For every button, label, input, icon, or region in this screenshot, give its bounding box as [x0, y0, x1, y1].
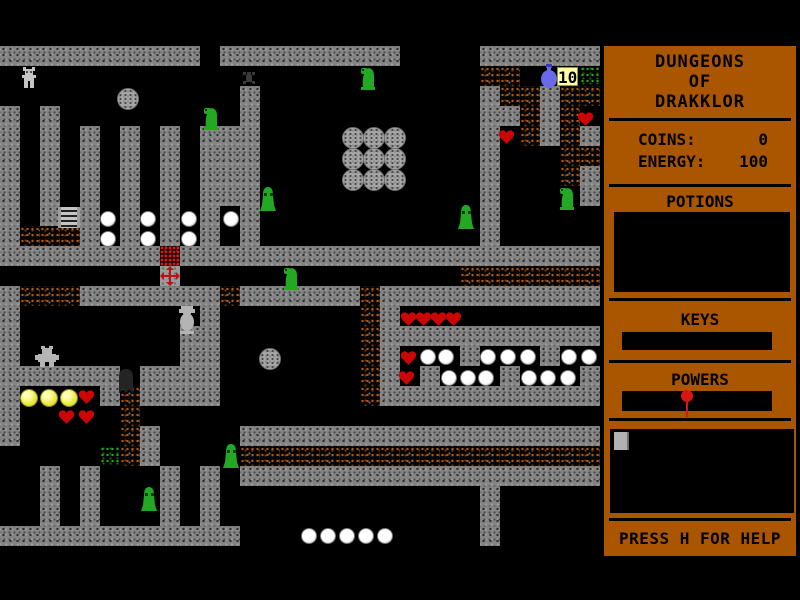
- duck-slime-sprite: [281, 266, 298, 290]
- gray-wall-tile: [80, 246, 100, 266]
- dirt-rubble-tile: [520, 126, 540, 146]
- duck-slime-sprite: [201, 106, 218, 130]
- boulder-sprite: [342, 127, 364, 149]
- gray-wall-tile: [200, 346, 220, 366]
- gray-wall-tile: [420, 366, 440, 386]
- gray-wall-tile: [0, 526, 20, 546]
- dirt-rubble-tile: [40, 226, 60, 246]
- dirt-rubble-tile: [340, 446, 360, 466]
- gray-wall-tile: [0, 306, 20, 326]
- gray-wall-tile: [40, 206, 60, 226]
- gray-wall-tile: [180, 286, 200, 306]
- dirt-rubble-tile: [580, 146, 600, 166]
- gray-wall-tile: [180, 46, 200, 66]
- gray-wall-tile: [0, 386, 20, 406]
- gray-wall-tile: [80, 526, 100, 546]
- gray-wall-tile: [80, 486, 100, 506]
- dirt-rubble-tile: [520, 266, 540, 286]
- gray-wall-tile: [500, 386, 520, 406]
- gray-wall-tile: [0, 106, 20, 126]
- gray-wall-tile: [260, 466, 280, 486]
- gray-wall-tile: [440, 326, 460, 346]
- gray-wall-tile: [480, 466, 500, 486]
- gray-wall-tile: [160, 226, 180, 246]
- gray-wall-tile: [20, 366, 40, 386]
- gray-wall-tile: [460, 386, 480, 406]
- gray-wall-tile: [180, 386, 200, 406]
- gray-wall-tile: [200, 306, 220, 326]
- gray-wall-tile: [0, 406, 20, 426]
- gray-wall-tile: [140, 286, 160, 306]
- dirt-rubble-tile: [40, 286, 60, 306]
- gray-wall-tile: [280, 426, 300, 446]
- gray-wall-tile: [420, 326, 440, 346]
- keys-heading: KEYS: [604, 310, 796, 329]
- dirt-rubble-tile: [500, 266, 520, 286]
- gray-wall-tile: [480, 106, 500, 126]
- gray-wall-tile: [540, 466, 560, 486]
- gray-wall-tile: [280, 466, 300, 486]
- gray-wall-tile: [560, 426, 580, 446]
- game-title-line3: DRAKKLOR: [604, 92, 796, 112]
- coins-label: COINS:: [638, 130, 696, 149]
- gray-wall-tile: [520, 286, 540, 306]
- gray-wall-tile: [140, 446, 160, 466]
- dirt-rubble-tile: [500, 66, 520, 86]
- pearl-sprite: [500, 349, 516, 365]
- dirt-rubble-tile: [20, 286, 40, 306]
- gray-wall-tile: [340, 246, 360, 266]
- dirt-rubble-tile: [240, 446, 260, 466]
- gray-wall-tile: [480, 426, 500, 446]
- gray-wall-tile: [480, 326, 500, 346]
- dirt-rubble-tile: [480, 446, 500, 466]
- pearl-sprite: [561, 349, 577, 365]
- gray-wall-tile: [300, 426, 320, 446]
- dirt-rubble-tile: [320, 446, 340, 466]
- gray-wall-tile: [400, 286, 420, 306]
- gray-wall-tile: [380, 286, 400, 306]
- gray-wall-tile: [300, 46, 320, 66]
- gray-wall-tile: [160, 146, 180, 166]
- coins-row: COINS: 0: [604, 130, 796, 149]
- gray-wall-tile: [80, 166, 100, 186]
- gray-wall-tile: [200, 206, 220, 226]
- gray-wall-tile: [100, 46, 120, 66]
- dirt-rubble-tile: [400, 446, 420, 466]
- gray-wall-tile: [480, 486, 500, 506]
- gray-wall-tile: [100, 286, 120, 306]
- dirt-rubble-tile: [540, 266, 560, 286]
- gray-wall-tile: [140, 426, 160, 446]
- divider: [609, 184, 791, 187]
- pearl-sprite: [377, 528, 393, 544]
- gray-wall-tile: [120, 246, 140, 266]
- coins-value: 0: [758, 130, 768, 149]
- dirt-rubble-tile: [220, 286, 240, 306]
- gray-wall-tile: [260, 46, 280, 66]
- gray-wall-tile: [0, 426, 20, 446]
- divider: [609, 298, 791, 301]
- pearl-sprite: [478, 370, 494, 386]
- divider: [609, 118, 791, 121]
- gray-wall-tile: [120, 526, 140, 546]
- gray-wall-tile: [280, 246, 300, 266]
- gray-wall-tile: [40, 366, 60, 386]
- dirt-rubble-tile: [360, 366, 380, 386]
- dungeon-map[interactable]: 10: [0, 46, 600, 566]
- gray-wall-tile: [580, 46, 600, 66]
- dirt-rubble-tile: [300, 446, 320, 466]
- gray-wall-tile: [80, 366, 100, 386]
- gray-wall-tile: [380, 246, 400, 266]
- boulder-sprite: [342, 169, 364, 191]
- gray-wall-tile: [500, 46, 520, 66]
- gray-wall-tile: [320, 46, 340, 66]
- pearl-sprite: [480, 349, 496, 365]
- pearl-sprite: [438, 349, 454, 365]
- bell-slime-sprite: [140, 486, 158, 512]
- gray-wall-tile: [40, 246, 60, 266]
- gray-wall-tile: [300, 246, 320, 266]
- counter-sprite: 10: [557, 67, 578, 86]
- heart-sprite: [78, 409, 95, 425]
- gray-wall-tile: [540, 386, 560, 406]
- gray-wall-tile: [580, 286, 600, 306]
- gray-wall-tile: [200, 466, 220, 486]
- gray-wall-tile: [540, 126, 560, 146]
- yellow-ball-sprite: [60, 389, 78, 407]
- duck-slime-sprite: [557, 186, 574, 210]
- gray-wall-tile: [0, 346, 20, 366]
- pearl-sprite: [521, 370, 537, 386]
- gray-wall-tile: [60, 246, 80, 266]
- gray-wall-tile: [580, 366, 600, 386]
- gray-wall-tile: [400, 246, 420, 266]
- dirt-rubble-tile: [420, 446, 440, 466]
- divider: [609, 518, 791, 521]
- gray-wall-tile: [160, 526, 180, 546]
- gray-wall-tile: [480, 246, 500, 266]
- pearl-sprite: [420, 349, 436, 365]
- gray-wall-tile: [360, 246, 380, 266]
- grass-patch-tile: [100, 446, 120, 466]
- gray-wall-tile: [460, 466, 480, 486]
- gray-wall-tile: [40, 106, 60, 126]
- pearl-sprite: [100, 211, 116, 227]
- gray-wall-tile: [480, 146, 500, 166]
- gray-wall-tile: [220, 46, 240, 66]
- inventory-box: [610, 429, 794, 513]
- gray-wall-tile: [200, 506, 220, 526]
- gray-wall-tile: [200, 286, 220, 306]
- gray-wall-tile: [580, 466, 600, 486]
- gray-wall-tile: [160, 366, 180, 386]
- heart-sprite: [577, 111, 594, 127]
- gray-wall-tile: [260, 426, 280, 446]
- gray-wall-tile: [560, 46, 580, 66]
- statue-sprite: [176, 306, 198, 334]
- gray-wall-tile: [380, 46, 400, 66]
- gray-wall-tile: [80, 206, 100, 226]
- pearl-sprite: [581, 349, 597, 365]
- gray-wall-tile: [160, 486, 180, 506]
- gray-wall-tile: [40, 46, 60, 66]
- heart-sprite: [58, 409, 75, 425]
- gray-wall-tile: [240, 466, 260, 486]
- heart-sprite: [398, 370, 415, 386]
- gray-wall-tile: [80, 286, 100, 306]
- gray-wall-tile: [200, 366, 220, 386]
- gray-wall-tile: [460, 326, 480, 346]
- ladder-sprite: [58, 207, 80, 228]
- gray-wall-tile: [580, 426, 600, 446]
- dirt-rubble-tile: [560, 166, 580, 186]
- gray-wall-tile: [60, 526, 80, 546]
- power-pin-icon: [680, 389, 694, 419]
- dirt-rubble-tile: [380, 446, 400, 466]
- dirt-rubble-tile: [360, 386, 380, 406]
- dirt-rubble-tile: [480, 266, 500, 286]
- gray-wall-tile: [460, 246, 480, 266]
- gray-wall-tile: [160, 206, 180, 226]
- gray-wall-tile: [380, 306, 400, 326]
- red-rubble-tile: [160, 246, 180, 266]
- gray-wall-tile: [160, 166, 180, 186]
- gray-wall-tile: [500, 326, 520, 346]
- duck-slime-sprite: [358, 66, 375, 90]
- gray-wall-tile: [80, 226, 100, 246]
- gray-wall-tile: [40, 526, 60, 546]
- help-text: PRESS H FOR HELP: [604, 529, 796, 548]
- gray-wall-tile: [560, 246, 580, 266]
- flask-sprite: [539, 64, 559, 88]
- gray-wall-tile: [580, 126, 600, 146]
- yellow-ball-sprite: [20, 389, 38, 407]
- gray-wall-tile: [500, 466, 520, 486]
- gray-wall-tile: [540, 326, 560, 346]
- divider: [609, 418, 791, 421]
- heart-sprite: [400, 350, 417, 366]
- gray-wall-tile: [200, 186, 220, 206]
- gray-wall-tile: [200, 146, 220, 166]
- boulder-sprite: [384, 169, 406, 191]
- gray-wall-tile: [40, 146, 60, 166]
- gray-wall-tile: [20, 246, 40, 266]
- heart-sprite: [445, 311, 462, 327]
- powers-box: [622, 391, 772, 411]
- gray-wall-tile: [180, 526, 200, 546]
- pearl-sprite: [181, 231, 197, 247]
- gray-wall-tile: [380, 366, 400, 386]
- powers-heading: POWERS: [604, 370, 796, 389]
- energy-label: ENERGY:: [638, 152, 705, 171]
- gray-wall-tile: [480, 46, 500, 66]
- gray-wall-tile: [340, 466, 360, 486]
- gray-wall-tile: [80, 46, 100, 66]
- gray-wall-tile: [400, 426, 420, 446]
- gray-wall-tile: [240, 246, 260, 266]
- gray-wall-tile: [120, 146, 140, 166]
- gray-wall-tile: [500, 366, 520, 386]
- dirt-rubble-tile: [60, 226, 80, 246]
- gray-wall-tile: [160, 126, 180, 146]
- gray-wall-tile: [260, 286, 280, 306]
- dirt-rubble-tile: [560, 126, 580, 146]
- gray-wall-tile: [460, 346, 480, 366]
- dirt-rubble-tile: [560, 86, 580, 106]
- gray-wall-tile: [420, 466, 440, 486]
- gray-wall-tile: [160, 386, 180, 406]
- gray-wall-tile: [400, 386, 420, 406]
- gray-wall-tile: [140, 386, 160, 406]
- gray-wall-tile: [580, 186, 600, 206]
- pearl-sprite: [320, 528, 336, 544]
- boulder-sprite: [384, 127, 406, 149]
- gray-wall-tile: [40, 186, 60, 206]
- gray-wall-tile: [80, 126, 100, 146]
- gray-wall-tile: [420, 386, 440, 406]
- gray-wall-tile: [200, 326, 220, 346]
- gray-wall-tile: [520, 466, 540, 486]
- dirt-rubble-tile: [260, 446, 280, 466]
- gray-wall-tile: [300, 466, 320, 486]
- gray-wall-tile: [200, 526, 220, 546]
- gray-wall-tile: [360, 46, 380, 66]
- boulder-sprite: [363, 127, 385, 149]
- gray-wall-tile: [420, 286, 440, 306]
- dirt-rubble-tile: [120, 426, 140, 446]
- player-sprite: [21, 67, 37, 88]
- gray-wall-tile: [440, 386, 460, 406]
- dirt-rubble-tile: [520, 86, 540, 106]
- gray-wall-tile: [80, 146, 100, 166]
- gray-wall-tile: [520, 326, 540, 346]
- gray-wall-tile: [120, 286, 140, 306]
- gray-wall-tile: [240, 146, 260, 166]
- gray-wall-tile: [300, 286, 320, 306]
- gray-wall-tile: [120, 166, 140, 186]
- grass-patch-tile: [580, 66, 600, 86]
- gray-wall-tile: [0, 146, 20, 166]
- gray-wall-tile: [340, 426, 360, 446]
- pearl-sprite: [223, 211, 239, 227]
- gray-wall-tile: [40, 126, 60, 146]
- pearl-sprite: [560, 370, 576, 386]
- pearl-sprite: [460, 370, 476, 386]
- gray-wall-tile: [380, 386, 400, 406]
- gray-wall-tile: [240, 426, 260, 446]
- gray-wall-tile: [540, 86, 560, 106]
- gray-wall-tile: [80, 466, 100, 486]
- gray-wall-tile: [320, 466, 340, 486]
- gray-wall-tile: [0, 366, 20, 386]
- gray-wall-tile: [480, 86, 500, 106]
- gray-wall-tile: [160, 506, 180, 526]
- gray-wall-tile: [320, 426, 340, 446]
- heart-sprite: [498, 129, 515, 145]
- game-title-line1: DUNGEONS: [604, 52, 796, 72]
- gray-wall-tile: [180, 346, 200, 366]
- gray-wall-tile: [500, 246, 520, 266]
- dirt-rubble-tile: [560, 146, 580, 166]
- gray-wall-tile: [40, 466, 60, 486]
- dirt-rubble-tile: [360, 286, 380, 306]
- potions-heading: POTIONS: [604, 192, 796, 211]
- gray-wall-tile: [400, 326, 420, 346]
- gray-wall-tile: [500, 106, 520, 126]
- potions-box: [614, 212, 790, 292]
- boulder-sprite: [259, 348, 281, 370]
- gray-wall-tile: [560, 466, 580, 486]
- dirt-rubble-tile: [580, 86, 600, 106]
- dirt-rubble-tile: [360, 346, 380, 366]
- bug-sprite: [241, 70, 257, 86]
- dirt-rubble-tile: [500, 86, 520, 106]
- boulder-sprite: [117, 88, 139, 110]
- pearl-sprite: [140, 211, 156, 227]
- boulder-sprite: [363, 169, 385, 191]
- gray-wall-tile: [540, 346, 560, 366]
- gray-wall-tile: [0, 206, 20, 226]
- gray-wall-tile: [480, 186, 500, 206]
- gray-wall-tile: [120, 226, 140, 246]
- pearl-sprite: [441, 370, 457, 386]
- gray-wall-tile: [0, 226, 20, 246]
- boulder-sprite: [363, 148, 385, 170]
- gray-wall-tile: [320, 286, 340, 306]
- dirt-rubble-tile: [460, 446, 480, 466]
- gray-wall-tile: [140, 46, 160, 66]
- status-sidebar: DUNGEONS OF DRAKKLOR COINS: 0 ENERGY: 10…: [602, 44, 798, 558]
- pearl-sprite: [181, 211, 197, 227]
- heart-sprite: [78, 389, 95, 405]
- dirt-rubble-tile: [500, 446, 520, 466]
- gray-wall-tile: [280, 46, 300, 66]
- bell-slime-sprite: [222, 443, 240, 469]
- gray-wall-tile: [240, 206, 260, 226]
- gray-wall-tile: [220, 526, 240, 546]
- pearl-sprite: [100, 231, 116, 247]
- gray-wall-tile: [460, 286, 480, 306]
- gray-wall-tile: [240, 46, 260, 66]
- gray-wall-tile: [240, 226, 260, 246]
- gray-wall-tile: [240, 166, 260, 186]
- gray-wall-tile: [200, 486, 220, 506]
- gray-wall-tile: [360, 426, 380, 446]
- dirt-rubble-tile: [120, 446, 140, 466]
- boulder-sprite: [384, 148, 406, 170]
- gray-wall-tile: [380, 326, 400, 346]
- pearl-sprite: [339, 528, 355, 544]
- gray-wall-tile: [480, 226, 500, 246]
- gray-wall-tile: [580, 326, 600, 346]
- keys-box: [622, 332, 772, 350]
- gray-wall-tile: [360, 466, 380, 486]
- gray-wall-tile: [380, 426, 400, 446]
- cross-pad-sprite: [160, 266, 180, 286]
- gray-wall-tile: [140, 526, 160, 546]
- gray-wall-tile: [320, 246, 340, 266]
- gray-wall-tile: [40, 166, 60, 186]
- energy-value: 100: [739, 152, 768, 171]
- gray-wall-tile: [100, 246, 120, 266]
- gray-wall-tile: [100, 526, 120, 546]
- gray-wall-tile: [140, 366, 160, 386]
- bell-slime-sprite: [259, 186, 277, 212]
- energy-row: ENERGY: 100: [604, 152, 796, 171]
- dirt-rubble-tile: [360, 306, 380, 326]
